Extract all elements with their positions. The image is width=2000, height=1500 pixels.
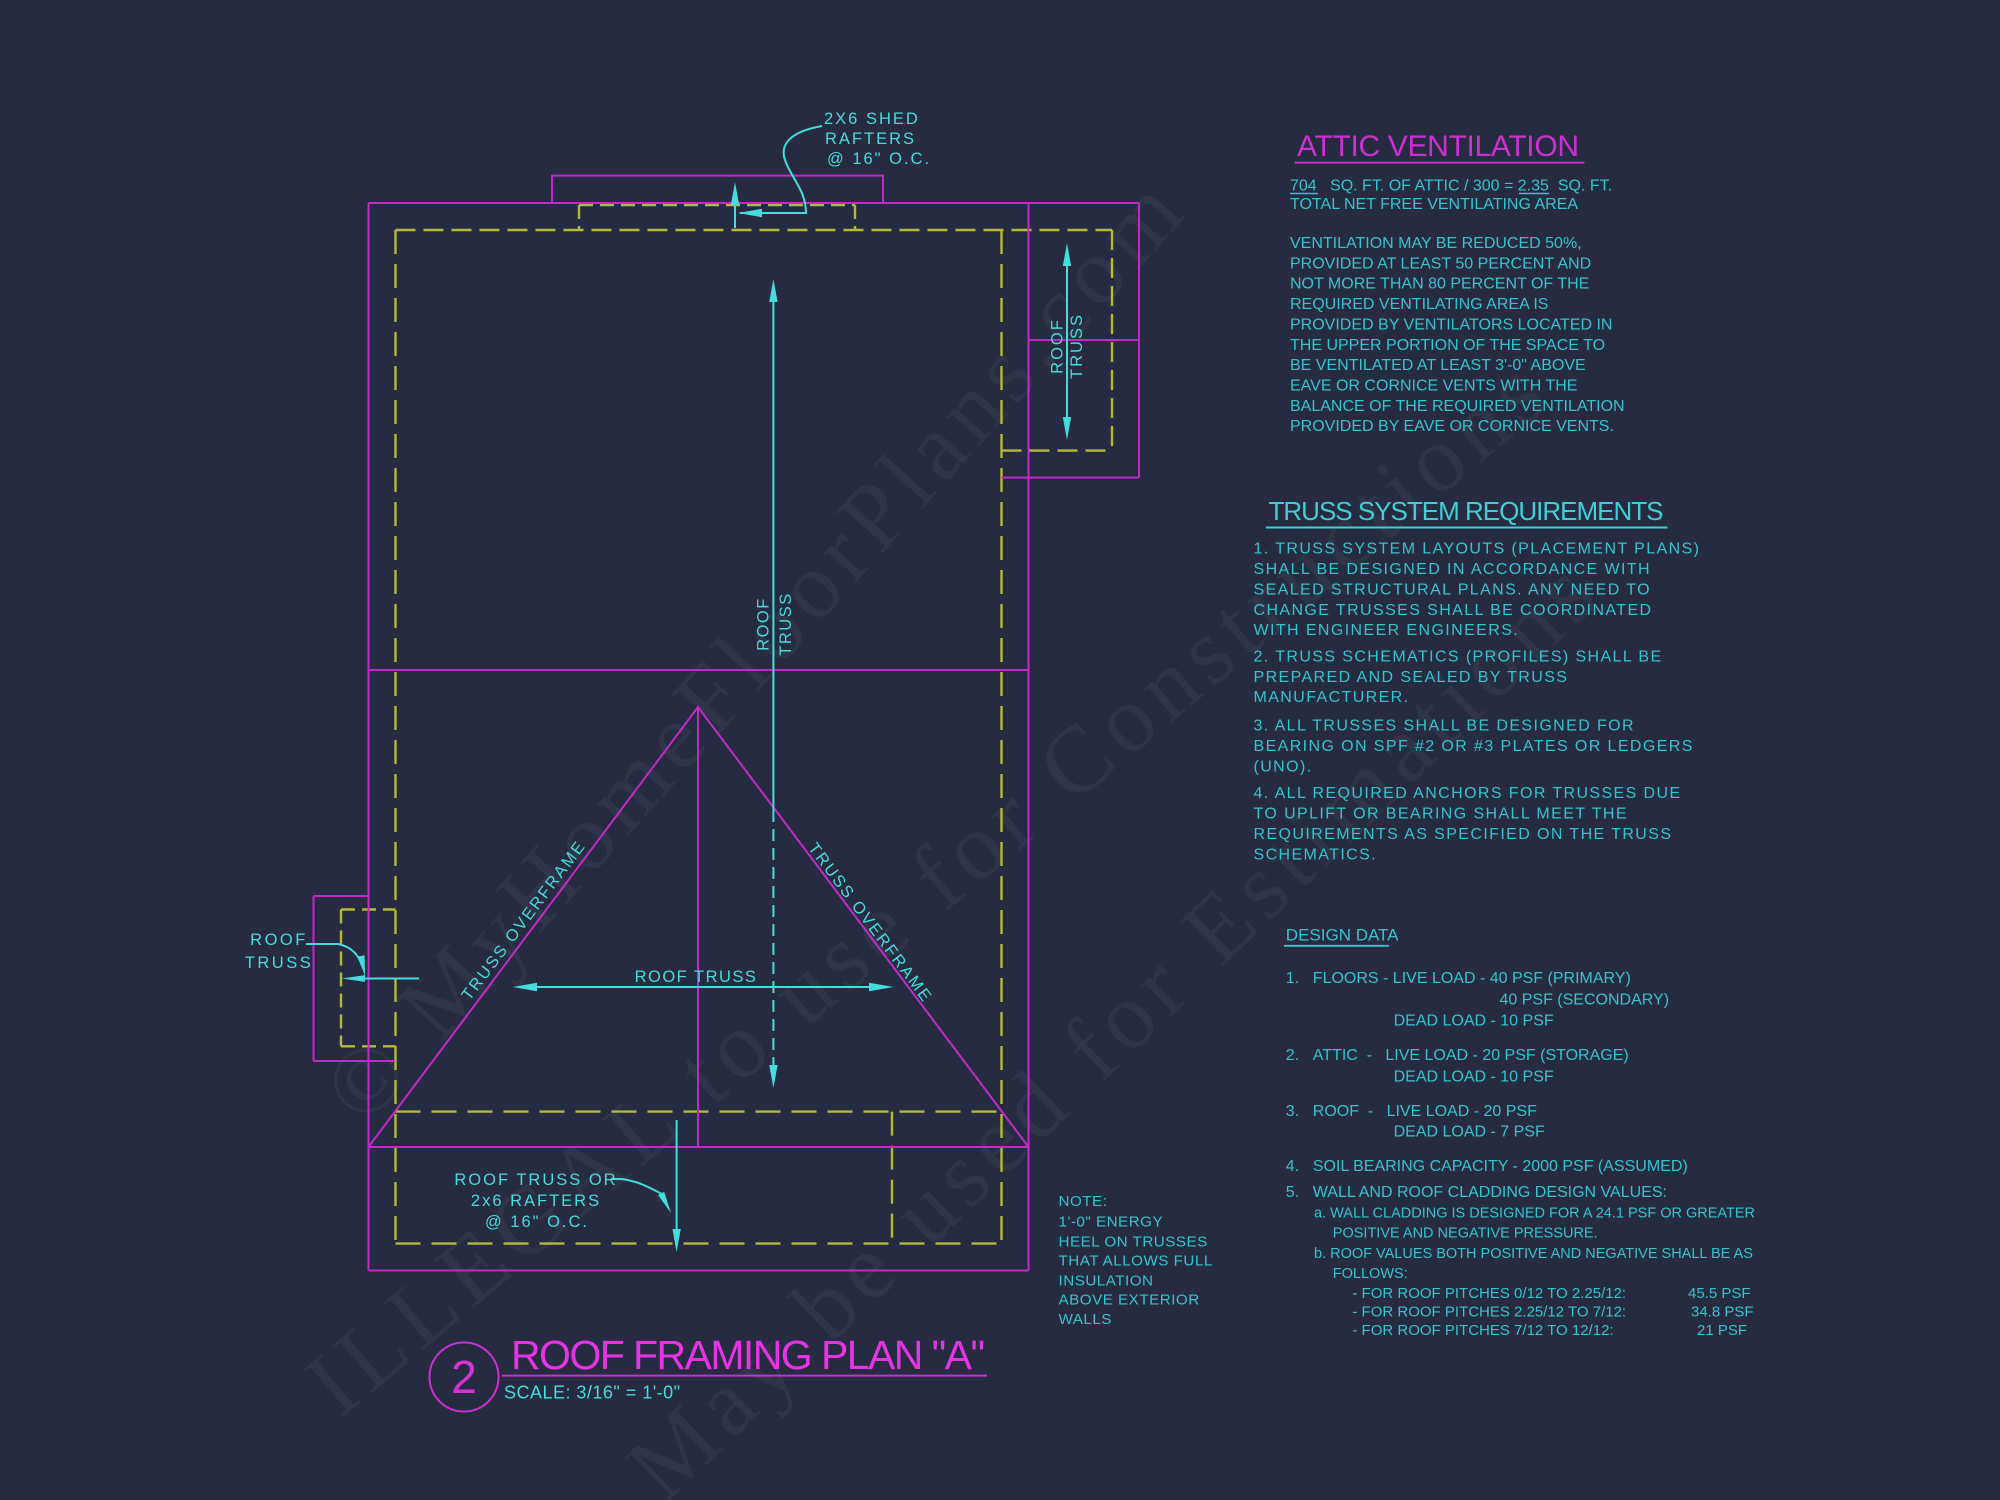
svg-text:FOLLOWS:: FOLLOWS: [1333,1266,1408,1282]
svg-text:5.: 5. [1286,1184,1299,1201]
svg-text:ROOF TRUSS: ROOF TRUSS [635,968,758,986]
svg-text:45.5 PSF: 45.5 PSF [1688,1285,1751,1302]
svg-text:ROOF - LIVE LOAD - 20 PSF: ROOF - LIVE LOAD - 20 PSF [1313,1103,1537,1120]
svg-text:ROOF FRAMING PLAN "A": ROOF FRAMING PLAN "A" [511,1332,985,1378]
svg-text:BEARING ON SPF #2 OR #3 PLATES: BEARING ON SPF #2 OR #3 PLATES OR LEDGER… [1254,738,1694,755]
svg-text:40 PSF (SECONDARY): 40 PSF (SECONDARY) [1500,991,1670,1008]
svg-text:REQUIRED VENTILATING AREA IS: REQUIRED VENTILATING AREA IS [1290,296,1548,313]
svg-text:VENTILATION MAY BE REDUCED 50%: VENTILATION MAY BE REDUCED 50%, [1290,235,1582,252]
svg-text:REQUIREMENTS AS SPECIFIED ON T: REQUIREMENTS AS SPECIFIED ON THE TRUSS [1254,826,1673,843]
svg-text:NOT MORE THAN 80 PERCENT OF TH: NOT MORE THAN 80 PERCENT OF THE [1290,276,1589,293]
svg-text:SCHEMATICS.: SCHEMATICS. [1254,846,1378,863]
svg-text:THE UPPER PORTION OF THE SPACE: THE UPPER PORTION OF THE SPACE TO [1290,337,1605,354]
svg-text:TRUSS SYSTEM REQUIREMENTS: TRUSS SYSTEM REQUIREMENTS [1269,496,1664,526]
svg-text:DEAD LOAD - 7 PSF: DEAD LOAD - 7 PSF [1394,1124,1545,1141]
svg-text:ROOF: ROOF [755,597,773,651]
svg-text:SOIL BEARING CAPACITY - 2000 P: SOIL BEARING CAPACITY - 2000 PSF (ASSUME… [1313,1158,1688,1175]
svg-text:21 PSF: 21 PSF [1697,1322,1747,1339]
svg-text:2x6 RAFTERS: 2x6 RAFTERS [471,1192,601,1210]
svg-text:INSULATION: INSULATION [1059,1272,1154,1289]
svg-text:- FOR ROOF PITCHES 2.25/12 TO: - FOR ROOF PITCHES 2.25/12 TO 7/12: [1352,1303,1626,1320]
svg-text:CHANGE TRUSSES SHALL BE COORDI: CHANGE TRUSSES SHALL BE COORDINATED [1254,602,1653,619]
svg-text:SHALL BE DESIGNED IN ACCORDANC: SHALL BE DESIGNED IN ACCORDANCE WITH [1254,561,1651,578]
svg-text:WALL AND ROOF CLADDING DESIGN: WALL AND ROOF CLADDING DESIGN VALUES: [1313,1184,1667,1201]
svg-text:2.: 2. [1286,1047,1299,1064]
svg-text:ROOF TRUSS OR: ROOF TRUSS OR [454,1171,617,1189]
svg-text:TRUSS: TRUSS [245,954,313,972]
svg-text:BE VENTILATED AT LEAST 3'-0" A: BE VENTILATED AT LEAST 3'-0" ABOVE [1290,357,1586,374]
svg-text:SEALED STRUCTURAL PLANS. ANY N: SEALED STRUCTURAL PLANS. ANY NEED TO [1254,581,1651,598]
svg-text:POSITIVE AND NEGATIVE PRESSURE: POSITIVE AND NEGATIVE PRESSURE. [1333,1225,1598,1241]
svg-text:BALANCE OF THE REQUIRED VENTIL: BALANCE OF THE REQUIRED VENTILATION [1290,398,1625,415]
svg-text:1'-0" ENERGY: 1'-0" ENERGY [1059,1214,1164,1231]
svg-text:TRUSS: TRUSS [777,592,795,655]
svg-text:PROVIDED BY EAVE OR CORNICE VE: PROVIDED BY EAVE OR CORNICE VENTS. [1290,418,1614,435]
svg-text:THAT ALLOWS FULL: THAT ALLOWS FULL [1059,1253,1213,1270]
svg-text:RAFTERS: RAFTERS [825,130,916,148]
svg-text:SCALE: 3/16" = 1'-0": SCALE: 3/16" = 1'-0" [504,1383,680,1403]
svg-text:ATTIC VENTILATION: ATTIC VENTILATION [1297,130,1580,163]
svg-text:FLOORS - LIVE LOAD - 40 PSF (P: FLOORS - LIVE LOAD - 40 PSF (PRIMARY) [1313,970,1631,987]
svg-text:PROVIDED BY VENTILATORS LOCATE: PROVIDED BY VENTILATORS LOCATED IN [1290,316,1612,333]
svg-text:DEAD LOAD - 10 PSF: DEAD LOAD - 10 PSF [1394,1013,1554,1030]
svg-text:2X6 SHED: 2X6 SHED [824,110,920,128]
svg-text:MANUFACTURER.: MANUFACTURER. [1254,689,1410,706]
svg-text:ROOF: ROOF [1049,318,1067,374]
svg-text:2. TRUSS SCHEMATICS (PROFILES): 2. TRUSS SCHEMATICS (PROFILES) SHALL BE [1254,648,1663,665]
svg-text:2: 2 [451,1351,477,1403]
svg-text:- FOR ROOF PITCHES 7/12 TO 12/: - FOR ROOF PITCHES 7/12 TO 12/12: [1352,1322,1613,1339]
svg-text:3. ALL TRUSSES SHALL BE DESIGN: 3. ALL TRUSSES SHALL BE DESIGNED FOR [1254,718,1635,735]
svg-text:ABOVE EXTERIOR: ABOVE EXTERIOR [1059,1292,1200,1309]
svg-text:ROOF: ROOF [250,931,308,949]
svg-text:PREPARED AND SEALED BY TRUSS: PREPARED AND SEALED BY TRUSS [1254,669,1569,686]
svg-text:TO UPLIFT OR BEARING SHALL MEE: TO UPLIFT OR BEARING SHALL MEET THE [1254,806,1628,823]
svg-text:NOTE:: NOTE: [1059,1193,1108,1210]
svg-text:a. WALL CLADDING IS DESIGNED F: a. WALL CLADDING IS DESIGNED FOR A 24.1 … [1314,1205,1755,1221]
svg-text:TRUSS: TRUSS [1068,313,1086,379]
svg-text:ATTIC - LIVE LOAD - 20 PSF: ATTIC - LIVE LOAD - 20 PSF (STORAGE) [1313,1047,1629,1064]
svg-text:DESIGN DATA: DESIGN DATA [1286,925,1399,944]
svg-text:WALLS: WALLS [1059,1311,1112,1328]
svg-text:PROVIDED AT LEAST 50 PERCENT A: PROVIDED AT LEAST 50 PERCENT AND [1290,255,1591,272]
svg-text:WITH ENGINEER ENGINEERS.: WITH ENGINEER ENGINEERS. [1254,622,1520,639]
svg-text:704 SQ. FT. OF ATTIC / 300 =: 704 SQ. FT. OF ATTIC / 300 = 2.35 SQ. FT… [1290,177,1612,194]
svg-text:DEAD LOAD - 10 PSF: DEAD LOAD - 10 PSF [1394,1068,1554,1085]
svg-text:@ 16" O.C.: @ 16" O.C. [827,150,931,168]
svg-text:TOTAL NET FREE VENTILATING ARE: TOTAL NET FREE VENTILATING AREA [1290,196,1578,213]
svg-text:b. ROOF VALUES BOTH POSITIVE A: b. ROOF VALUES BOTH POSITIVE AND NEGATIV… [1314,1246,1753,1262]
svg-text:4.: 4. [1286,1158,1299,1175]
svg-text:HEEL ON TRUSSES: HEEL ON TRUSSES [1059,1233,1208,1250]
svg-text:1. TRUSS SYSTEM LAYOUTS (PLACE: 1. TRUSS SYSTEM LAYOUTS (PLACEMENT PLANS… [1254,541,1701,558]
svg-text:@ 16" O.C.: @ 16" O.C. [485,1213,589,1231]
svg-text:(UNO).: (UNO). [1254,759,1313,776]
svg-text:3.: 3. [1286,1103,1299,1120]
svg-text:1.: 1. [1286,970,1299,987]
svg-text:34.8 PSF: 34.8 PSF [1691,1303,1754,1320]
svg-text:EAVE OR CORNICE VENTS WITH THE: EAVE OR CORNICE VENTS WITH THE [1290,378,1577,395]
svg-text:4. ALL REQUIRED ANCHORS FOR TR: 4. ALL REQUIRED ANCHORS FOR TRUSSES DUE [1254,785,1682,802]
svg-text:- FOR ROOF PITCHES 0/12 TO 2.2: - FOR ROOF PITCHES 0/12 TO 2.25/12: [1352,1285,1626,1302]
